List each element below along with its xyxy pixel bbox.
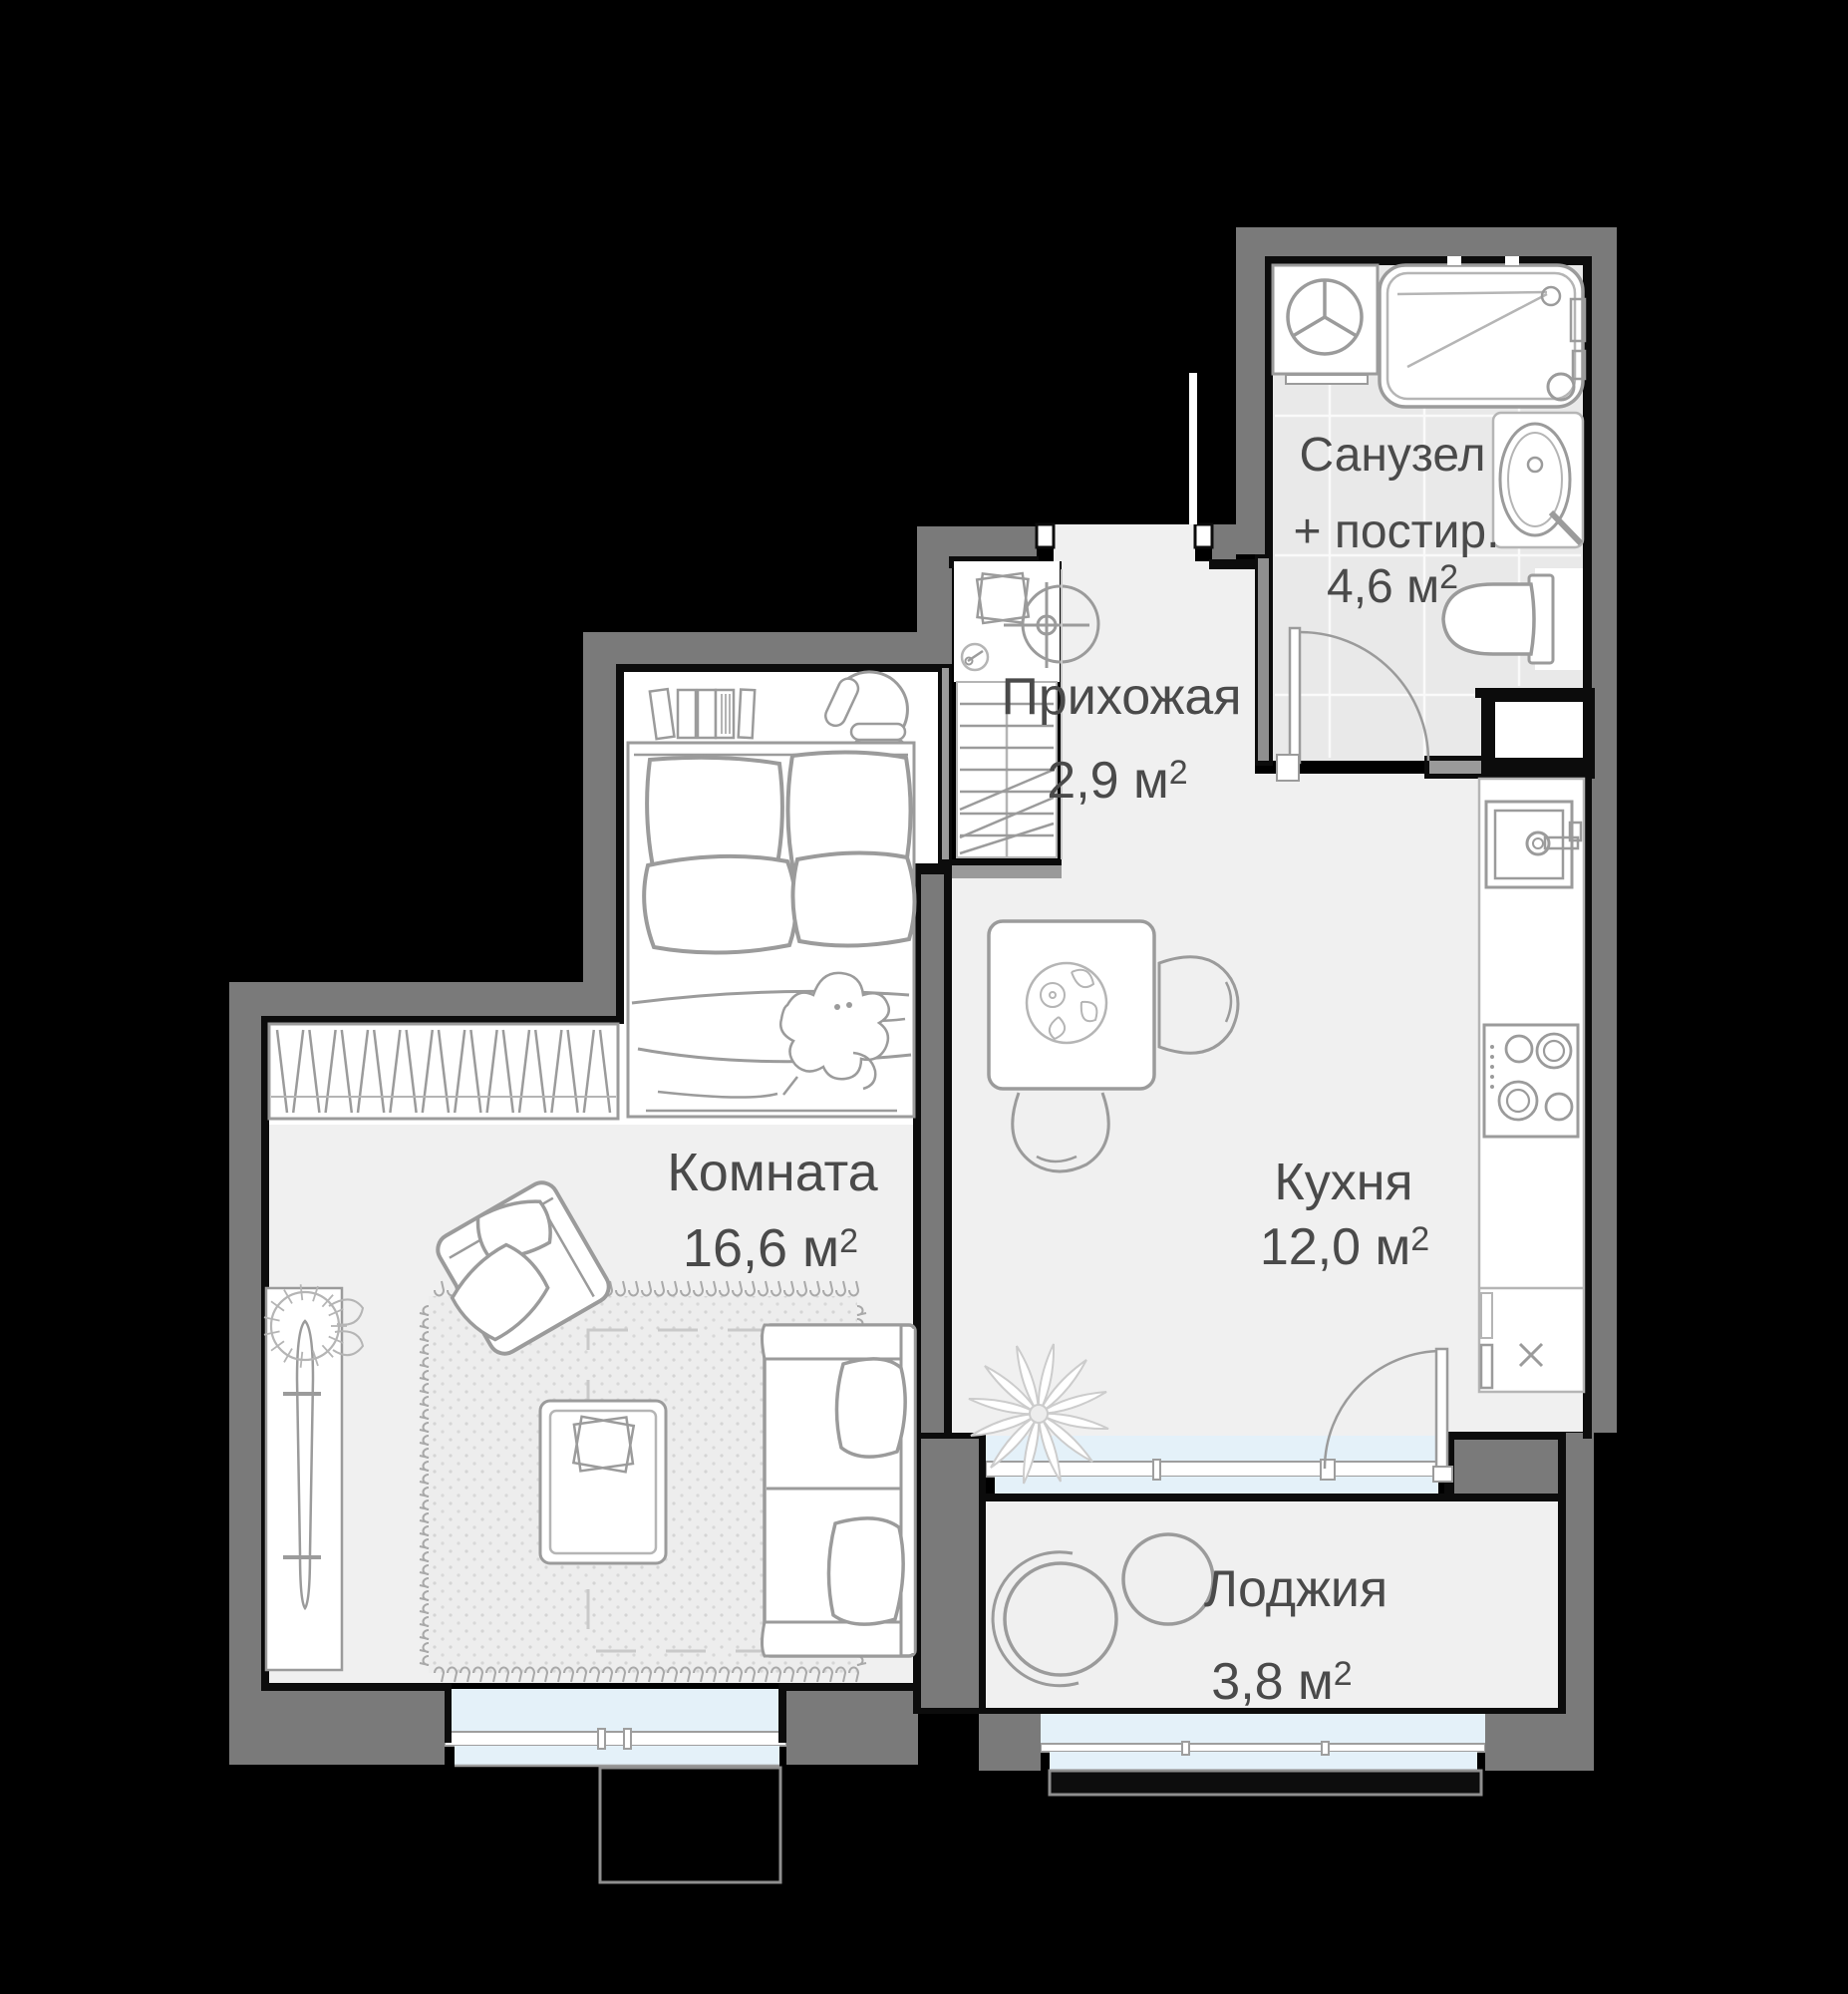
svg-text:+ постир.: + постир. <box>1294 505 1500 558</box>
svg-text:Кухня: Кухня <box>1274 1154 1412 1211</box>
svg-text:12,0 м2: 12,0 м2 <box>1260 1218 1429 1276</box>
svg-text:Лоджия: Лоджия <box>1204 1560 1387 1618</box>
svg-text:16,6 м2: 16,6 м2 <box>683 1218 858 1278</box>
svg-text:4,6 м2: 4,6 м2 <box>1327 558 1458 613</box>
svg-text:Прихожая: Прихожая <box>1002 668 1242 726</box>
svg-text:Комната: Комната <box>667 1143 878 1202</box>
svg-text:2,9 м2: 2,9 м2 <box>1047 752 1187 810</box>
svg-text:3,8 м2: 3,8 м2 <box>1211 1653 1352 1711</box>
svg-text:Санузел: Санузел <box>1300 429 1486 482</box>
